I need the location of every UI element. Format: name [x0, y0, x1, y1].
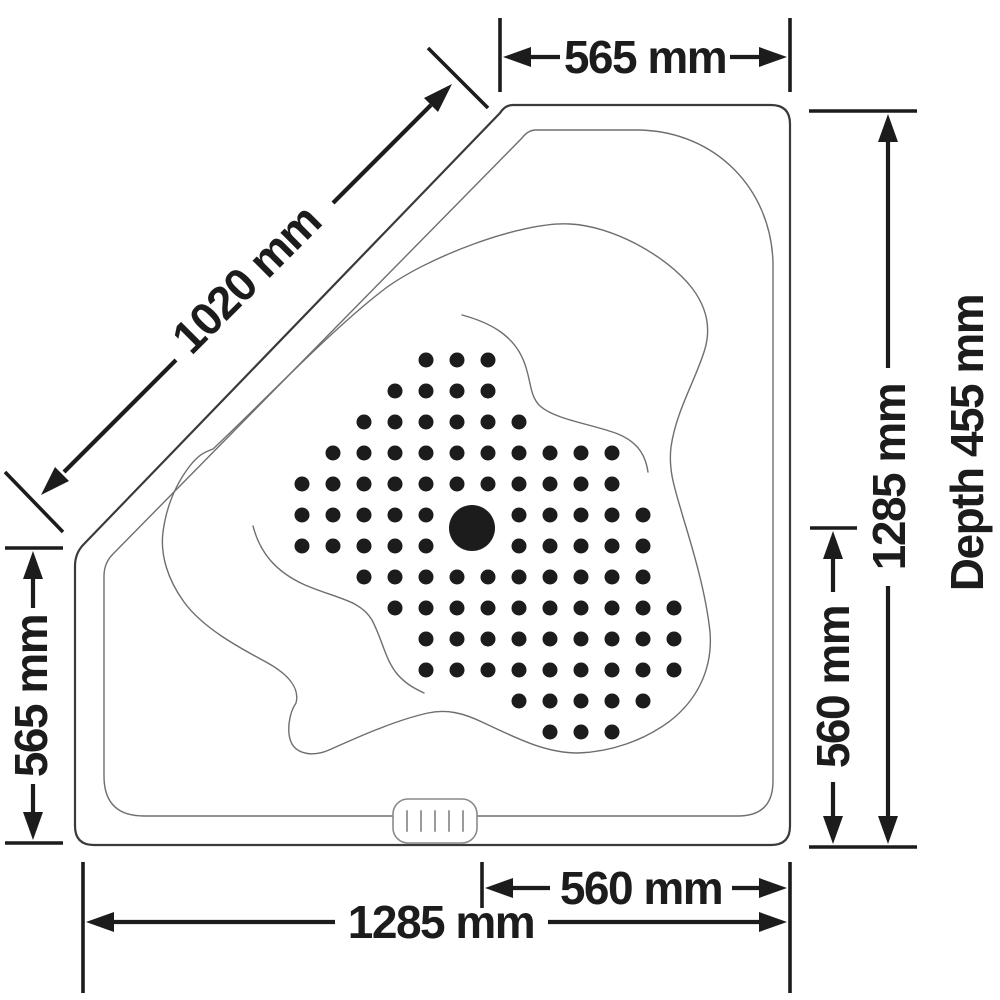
jet-dot	[357, 570, 372, 585]
jet-dot	[326, 508, 341, 523]
jet-dot	[295, 539, 310, 554]
control-panel	[393, 799, 477, 843]
arrow-down-icon	[23, 812, 43, 840]
jet-dot	[419, 446, 434, 461]
jet-dot	[574, 570, 589, 585]
jet-dot	[605, 632, 620, 647]
jet-dot	[419, 601, 434, 616]
jet-dot	[512, 415, 527, 430]
jet-dot	[326, 446, 341, 461]
jet-dot	[295, 477, 310, 492]
jet-dot	[543, 570, 558, 585]
jet-dot	[481, 663, 496, 678]
dim-label-left-height: 565 mm	[5, 615, 57, 777]
jet-dot	[574, 632, 589, 647]
dim-line	[333, 105, 431, 203]
arrow-up-icon	[878, 114, 898, 142]
jet-dot	[605, 539, 620, 554]
jet-dot	[388, 601, 403, 616]
dim-top-width: 565 mm	[500, 18, 790, 92]
jet-dot	[326, 539, 341, 554]
jet-dot	[388, 477, 403, 492]
jet-dot	[543, 446, 558, 461]
jet-dot	[450, 446, 465, 461]
drain	[449, 505, 495, 551]
dim-label-bottom-full-width: 1285 mm	[348, 896, 534, 948]
arrow-right-icon	[759, 47, 787, 67]
jet-dot	[667, 601, 682, 616]
jet-dot	[605, 508, 620, 523]
jet-dot	[574, 725, 589, 740]
jet-dot	[636, 570, 651, 585]
jet-dot	[636, 539, 651, 554]
jet-dot	[388, 508, 403, 523]
jet-dot	[605, 694, 620, 709]
jet-dot	[388, 415, 403, 430]
jet-dot	[574, 601, 589, 616]
jet-dot	[512, 539, 527, 554]
jet-dot	[419, 353, 434, 368]
jet-dot	[636, 601, 651, 616]
dim-left-height: 565 mm	[5, 548, 63, 843]
jet-dot	[512, 601, 527, 616]
arrow-right-icon	[759, 878, 787, 898]
jet-dot	[574, 663, 589, 678]
jet-dot	[419, 477, 434, 492]
jet-dot	[419, 570, 434, 585]
jet-dot	[450, 353, 465, 368]
jet-dot	[357, 539, 372, 554]
depth-label: Depth 455 mm	[941, 295, 993, 591]
jet-dot	[450, 663, 465, 678]
jet-dot	[605, 477, 620, 492]
jet-dot	[388, 446, 403, 461]
jet-dot	[543, 632, 558, 647]
jet-dot	[605, 663, 620, 678]
jet-dot	[574, 539, 589, 554]
jet-dot	[450, 477, 465, 492]
jet-dot	[326, 477, 341, 492]
jet-dot	[481, 601, 496, 616]
arrow-up-icon	[823, 531, 843, 559]
jet-dot	[512, 694, 527, 709]
jet-dot	[419, 508, 434, 523]
jet-dot	[481, 477, 496, 492]
arrow-right-icon	[759, 912, 787, 932]
jet-dot	[574, 446, 589, 461]
jet-dot	[636, 663, 651, 678]
jet-dot	[636, 632, 651, 647]
jet-dot	[667, 663, 682, 678]
jet-dot	[419, 663, 434, 678]
jet-dot	[357, 477, 372, 492]
jet-dot	[512, 477, 527, 492]
jet-dot	[481, 632, 496, 647]
jet-dot	[512, 570, 527, 585]
jet-dot	[481, 570, 496, 585]
jet-dot	[357, 415, 372, 430]
dim-line	[64, 360, 176, 472]
jet-dot	[512, 632, 527, 647]
jet-dot	[543, 508, 558, 523]
jet-dot	[481, 384, 496, 399]
jet-dot	[636, 694, 651, 709]
dim-label-top-width: 565 mm	[564, 31, 726, 83]
bathtub-dimension-diagram: 565 mm 1020 mm 565 mm 1285 mm Depth 455 …	[0, 0, 1000, 1000]
jet-dot	[605, 570, 620, 585]
jet-dot	[450, 384, 465, 399]
arrow-left-icon	[503, 47, 531, 67]
dim-right-basin-height: 560 mm	[807, 528, 859, 844]
jet-dot	[450, 601, 465, 616]
tub-outer-edge	[75, 105, 790, 845]
jet-dot	[419, 539, 434, 554]
jet-dot	[543, 663, 558, 678]
jet-dot	[543, 539, 558, 554]
dim-label-right-full-height: 1285 mm	[863, 384, 915, 570]
jet-dot	[512, 446, 527, 461]
tub-outline	[75, 105, 790, 845]
jet-dot	[512, 663, 527, 678]
jet-dot	[388, 570, 403, 585]
jet-dot	[574, 508, 589, 523]
jet-dot	[450, 632, 465, 647]
jet-dot	[543, 694, 558, 709]
arrow-left-icon	[86, 912, 114, 932]
jet-dot	[667, 632, 682, 647]
jet-dot	[543, 477, 558, 492]
jet-dot	[481, 353, 496, 368]
dim-label-right-basin-height: 560 mm	[807, 606, 859, 768]
jet-dot	[543, 601, 558, 616]
jet-dot	[605, 601, 620, 616]
jet-dot	[574, 694, 589, 709]
arrow-down-icon	[878, 816, 898, 844]
jet-dot	[605, 446, 620, 461]
jet-dot	[481, 446, 496, 461]
jet-dot	[295, 508, 310, 523]
jet-dot	[512, 508, 527, 523]
arrow-down-icon	[823, 816, 843, 844]
jet-dot	[543, 725, 558, 740]
jet-dot	[419, 384, 434, 399]
dim-label-bottom-basin-width: 560 mm	[560, 862, 722, 914]
jet-dot	[419, 415, 434, 430]
jet-dot	[450, 415, 465, 430]
arrow-up-icon	[23, 551, 43, 579]
arrow-left-icon	[485, 878, 513, 898]
jet-dot	[357, 508, 372, 523]
jet-dot	[419, 632, 434, 647]
jet-dot	[388, 384, 403, 399]
jet-dot	[636, 508, 651, 523]
jet-dot	[450, 570, 465, 585]
jet-dot	[388, 539, 403, 554]
jet-dot	[605, 725, 620, 740]
jet-dot	[481, 415, 496, 430]
jet-dot	[357, 446, 372, 461]
jet-dot	[574, 477, 589, 492]
